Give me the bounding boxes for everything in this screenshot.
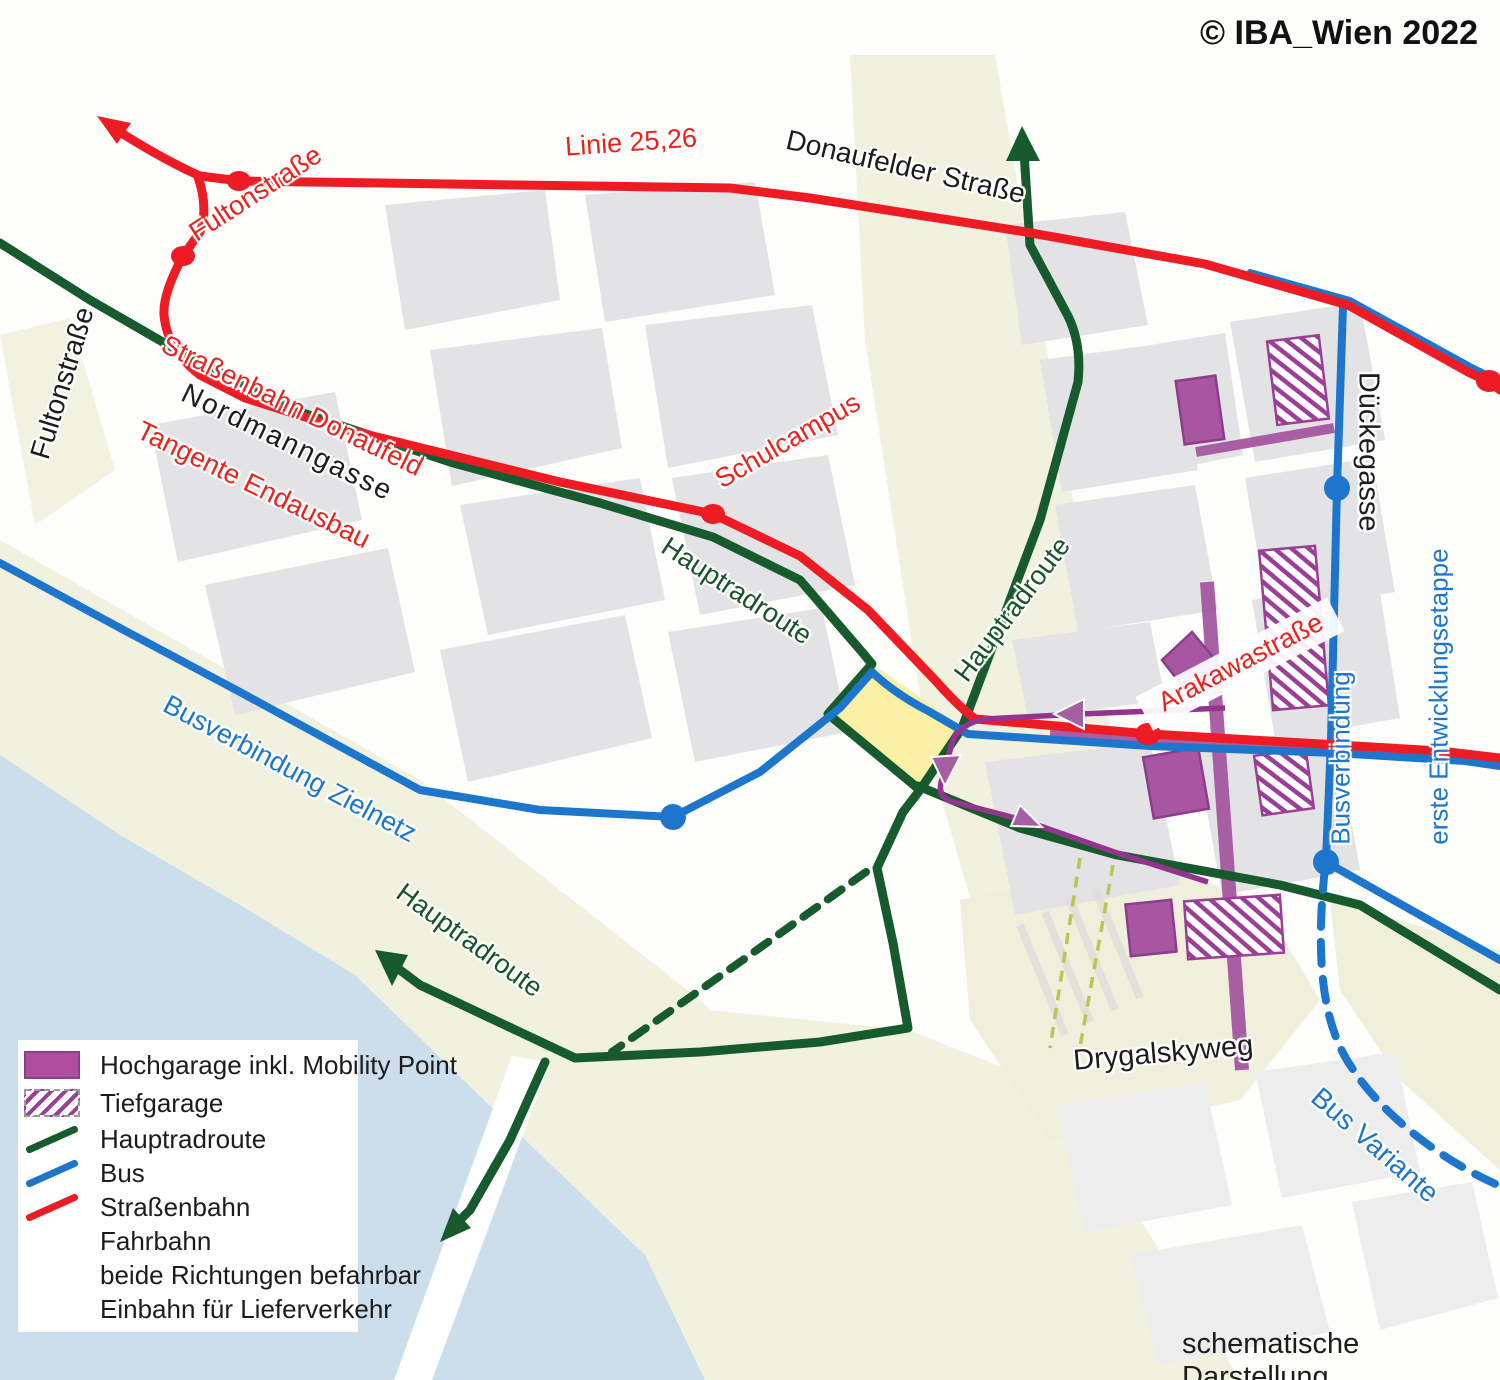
legend-label: Fahrbahn [100, 1226, 211, 1257]
map-legend: Hochgarage inkl. Mobility Point Tiefgara… [18, 1040, 358, 1332]
copyright-notice: © IBA_Wien 2022 [1200, 14, 1478, 53]
label-busverbindung-line2: erste Entwicklungsetappe [1422, 509, 1455, 845]
legend-row-strassenbahn: Straßenbahn [18, 1190, 358, 1224]
hauptradroute-swatch [25, 1124, 79, 1153]
legend-label: Tiefgarage [100, 1088, 223, 1119]
legend-label: Hochgarage inkl. Mobility Point [100, 1050, 457, 1081]
strassenbahn-swatch [25, 1192, 79, 1221]
label-busverbindung-line1: Busverbindung [1324, 509, 1357, 845]
legend-row-beide-richtungen: beide Richtungen befahrbar [18, 1258, 358, 1292]
arrow-north [1006, 126, 1040, 161]
legend-label: Straßenbahn [100, 1192, 250, 1223]
legend-row-hochgarage: Hochgarage inkl. Mobility Point [18, 1046, 358, 1084]
legend-row-hauptradroute: Hauptradroute [18, 1122, 358, 1156]
hochgarage-swatch [24, 1051, 80, 1079]
legend-row-tiefgarage: Tiefgarage [18, 1084, 358, 1122]
legend-label: Einbahn für Lieferverkehr [100, 1294, 392, 1325]
legend-row-bus: Bus [18, 1156, 358, 1190]
legend-label: Bus [100, 1158, 145, 1189]
legend-row-einbahn: Einbahn für Lieferverkehr [18, 1292, 358, 1326]
legend-row-fahrbahn: Fahrbahn [18, 1224, 358, 1258]
transit-map: Linie 25,26 Donaufelder Straße Fultonstr… [0, 0, 1500, 1380]
tiefgarage-swatch [24, 1089, 80, 1117]
legend-label: Hauptradroute [100, 1124, 266, 1155]
legend-label: beide Richtungen befahrbar [100, 1260, 421, 1291]
schematic-note: schematische Darstellung [1182, 1328, 1500, 1380]
bus-swatch [25, 1158, 79, 1187]
label-busverbindung-erste: Busverbindung erste Entwicklungsetappe [1259, 509, 1487, 845]
